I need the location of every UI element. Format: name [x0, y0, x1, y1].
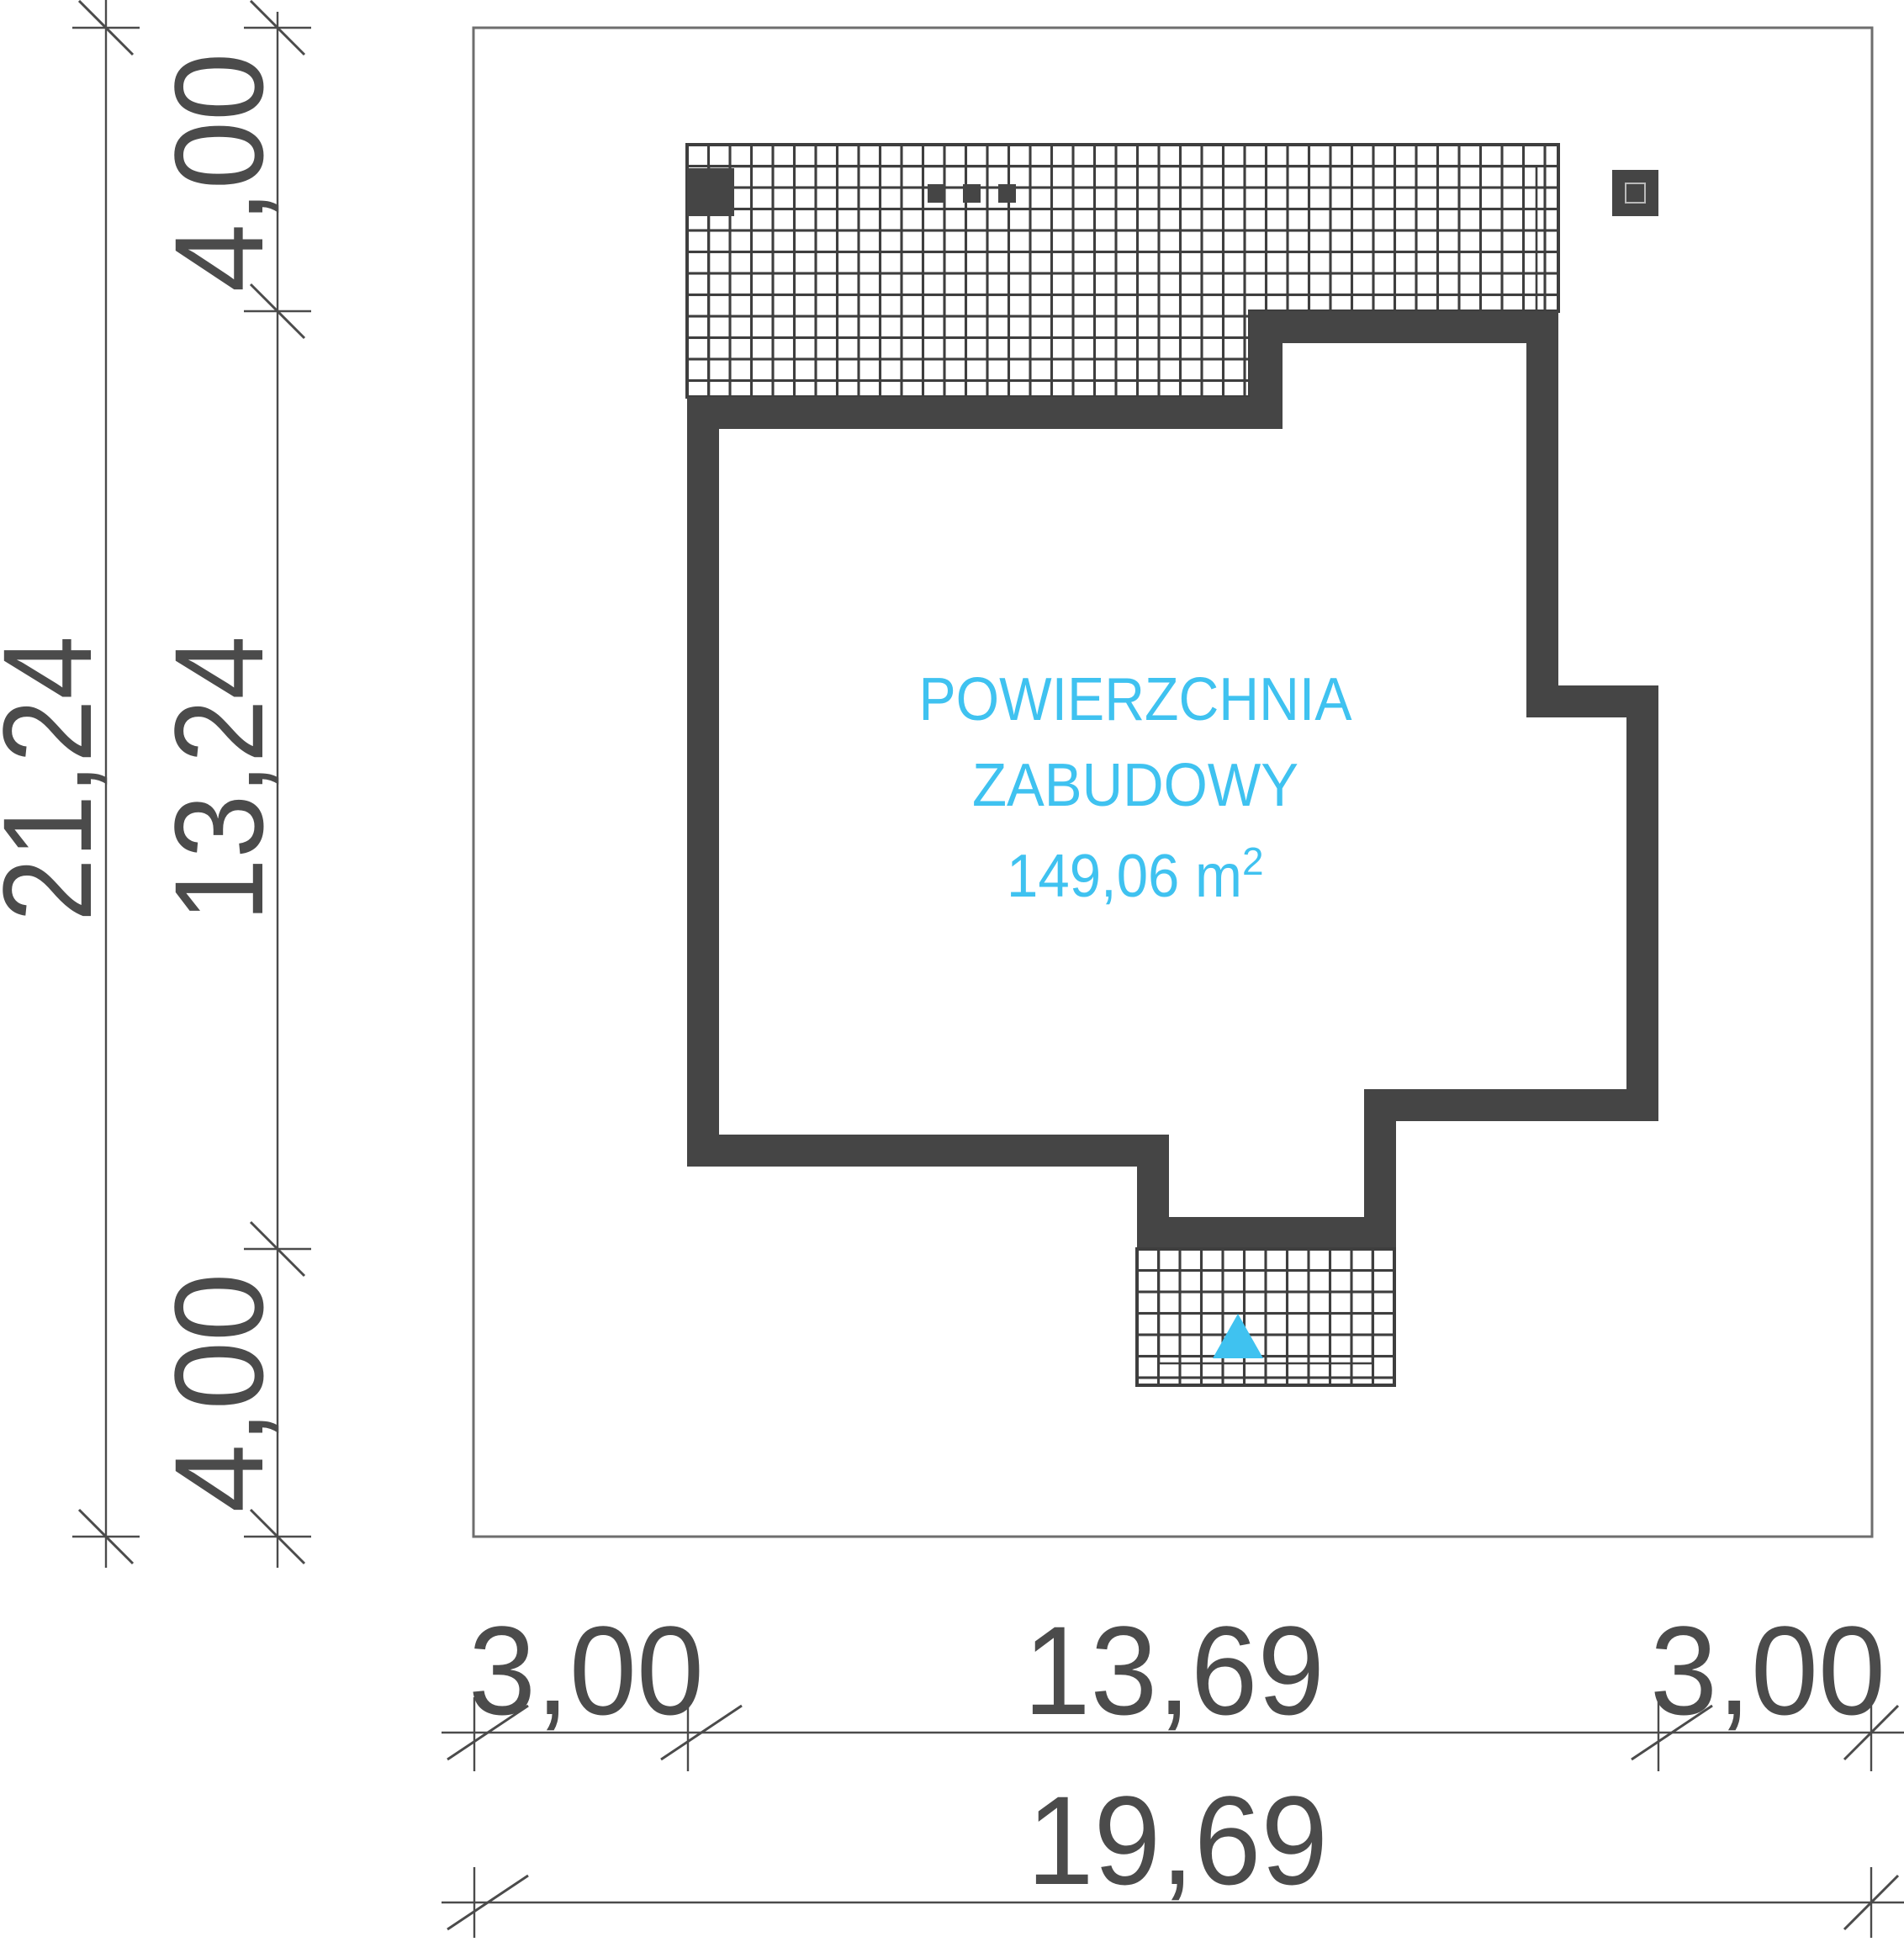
skylight-square: [1612, 170, 1658, 216]
left-dimension-labels: 4,00 13,24 4,00 21,24: [0, 53, 289, 1513]
dimension-label-left-bottom: 4,00: [148, 1273, 289, 1513]
roof-vent-square: [963, 184, 981, 203]
dimension-label-bottom-middle: 13,69: [1023, 1600, 1325, 1741]
site-plan-drawing: POWIERZCHNIA ZABUDOWY 149,06 m2 4,00 13,…: [0, 0, 1904, 1938]
chimney-square: [687, 168, 734, 216]
bottom-dimension-labels: 3,00 13,69 3,00 19,69: [468, 1600, 1885, 1911]
area-label-line2: ZABUDOWY: [972, 752, 1298, 819]
dimension-label-left-total: 21,24: [0, 636, 118, 922]
roof-vent-square: [998, 184, 1016, 203]
terrace-hatch-fill: [1137, 1249, 1394, 1385]
site-plan-page: POWIERZCHNIA ZABUDOWY 149,06 m2 4,00 13,…: [0, 0, 1904, 1938]
dimension-label-bottom-right: 3,00: [1650, 1600, 1885, 1741]
area-value-main: 149,06 m: [1007, 843, 1242, 910]
roof-vent-squares: [928, 184, 1016, 203]
area-label-value: 149,06 m2: [1007, 839, 1264, 910]
dimension-label-bottom-total: 19,69: [1027, 1770, 1328, 1911]
entrance-terrace: [1137, 1249, 1394, 1385]
dimension-label-left-top: 4,00: [148, 53, 289, 293]
skylight-outer: [1612, 170, 1658, 216]
area-value-superscript: 2: [1242, 839, 1264, 883]
dimension-label-bottom-left: 3,00: [468, 1600, 704, 1741]
roof-vent-square: [928, 184, 945, 203]
dimension-label-left-middle: 13,24: [148, 636, 289, 922]
area-label-line1: POWIERZCHNIA: [919, 666, 1352, 733]
